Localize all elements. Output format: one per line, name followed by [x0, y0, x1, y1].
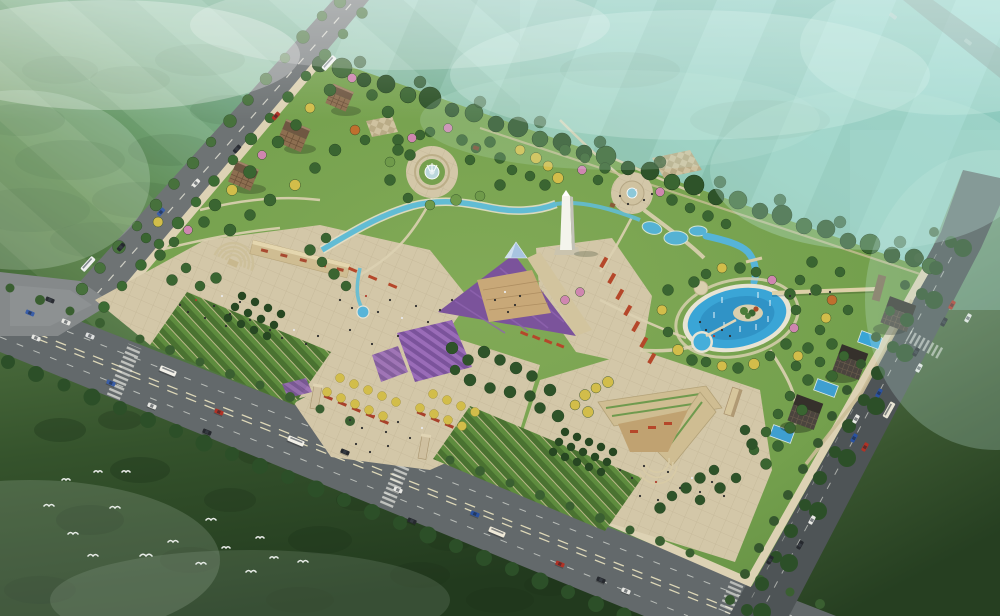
aerial-park-rendering [0, 0, 1000, 616]
obelisk-shadow [574, 251, 598, 257]
scene-canvas [0, 0, 1000, 616]
fan-pool [357, 306, 369, 318]
